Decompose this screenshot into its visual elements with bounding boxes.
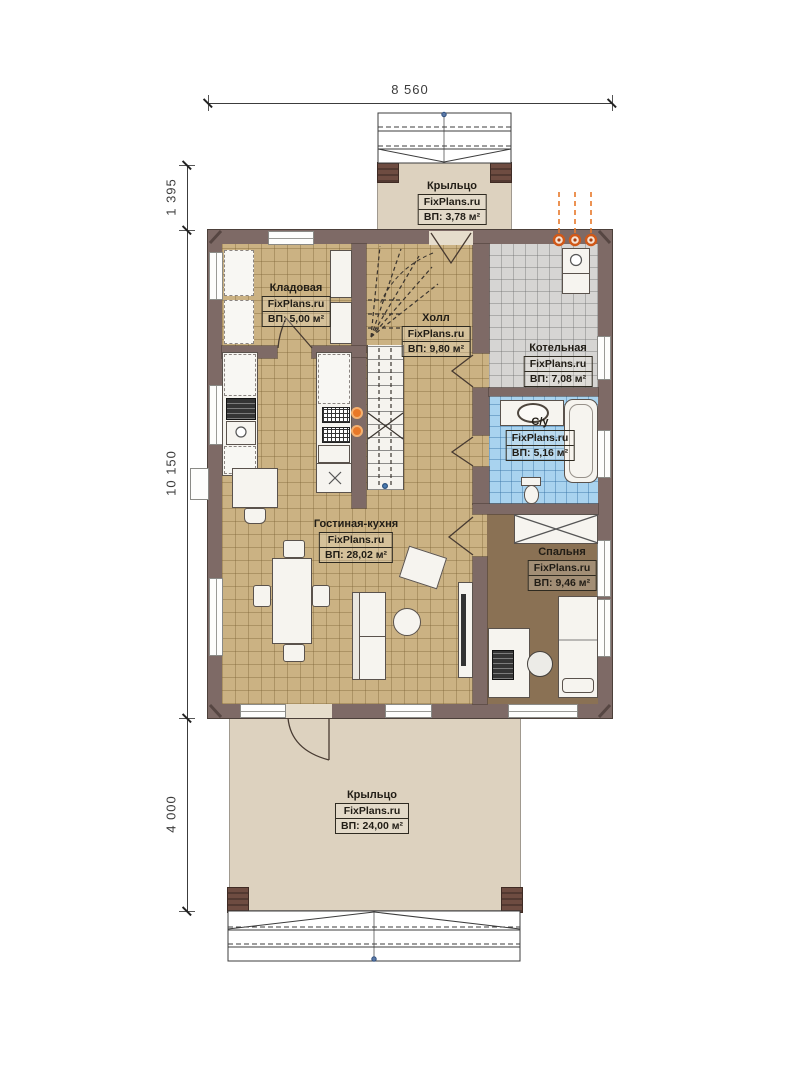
dim-main-label: 10 150 <box>164 450 179 496</box>
wall-bedroom-left <box>473 557 487 704</box>
chair <box>283 540 305 558</box>
room-name: С/у <box>531 416 548 428</box>
fixplans-watermark: FixPlans.ru <box>403 327 470 341</box>
room-area: ВП: 28,02 м² <box>320 547 392 562</box>
wall-hall-right <box>473 388 489 435</box>
room-label-boiler: Котельная FixPlans.ru ВП: 7,08 м² <box>524 342 593 387</box>
porch-column <box>502 888 522 912</box>
fixplans-watermark: FixPlans.ru <box>525 357 592 371</box>
window <box>508 704 578 718</box>
porch-column <box>491 163 511 182</box>
pillow <box>562 678 594 693</box>
label-box: FixPlans.ru ВП: 3,78 м² <box>418 194 487 225</box>
room-area: ВП: 5,16 м² <box>507 445 574 460</box>
room-label-living-kitchen: Гостиная-кухня FixPlans.ru ВП: 28,02 м² <box>314 518 398 563</box>
room-name: Котельная <box>529 342 587 354</box>
label-box: FixPlans.ru ВП: 28,02 м² <box>319 532 393 563</box>
chair <box>283 644 305 662</box>
canopy-top <box>378 112 511 163</box>
fixplans-watermark: FixPlans.ru <box>336 804 408 818</box>
room-label-porch-top: Крыльцо FixPlans.ru ВП: 3,78 м² <box>418 180 487 225</box>
sofa-backrest <box>352 592 360 680</box>
room-area: ВП: 24,00 м² <box>336 818 408 833</box>
fixplans-watermark: FixPlans.ru <box>320 533 392 547</box>
fixplans-watermark: FixPlans.ru <box>529 561 596 575</box>
kitchen-cabinet <box>224 354 256 396</box>
wall-storage-right <box>352 244 366 352</box>
room-label-porch-bottom: Крыльцо FixPlans.ru ВП: 24,00 м² <box>335 789 409 834</box>
chair <box>253 585 271 607</box>
kitchen-fridge <box>226 398 256 420</box>
room-label-hall: Холл FixPlans.ru ВП: 9,80 м² <box>402 312 471 357</box>
wall-hall-right <box>473 467 489 504</box>
dim-width-label: 8 560 <box>208 82 612 97</box>
storage-wardrobe <box>330 302 352 344</box>
dim-line-top <box>208 103 612 104</box>
fixplans-watermark: FixPlans.ru <box>419 195 486 209</box>
label-box: FixPlans.ru ВП: 5,16 м² <box>506 430 575 461</box>
dining-table <box>272 558 312 644</box>
window <box>268 231 314 245</box>
label-box: FixPlans.ru ВП: 9,80 м² <box>402 326 471 357</box>
room-area: ВП: 7,08 м² <box>525 371 592 386</box>
front-door-opening <box>429 231 473 245</box>
porch-column <box>378 163 398 182</box>
room-name: Гостиная-кухня <box>314 518 398 530</box>
room-label-storage: Кладовая FixPlans.ru ВП: 5,00 м² <box>262 282 331 327</box>
kitchen-island <box>232 468 278 508</box>
kitchen-sink-unit <box>226 421 256 445</box>
window <box>240 704 286 718</box>
stove-burners <box>322 407 350 423</box>
fixplans-watermark: FixPlans.ru <box>507 431 574 445</box>
room-name: Крыльцо <box>347 789 397 801</box>
wall-hall-right <box>473 244 489 353</box>
storage-shelf <box>224 250 254 296</box>
dim-porchtop-label: 1 395 <box>164 178 179 216</box>
wall-vent-box <box>190 468 209 500</box>
chair <box>312 585 330 607</box>
room-area: ВП: 9,80 м² <box>403 341 470 356</box>
room-label-bedroom: Спальня FixPlans.ru ВП: 9,46 м² <box>528 546 597 591</box>
room-name: Спальня <box>538 546 586 558</box>
window <box>209 252 223 300</box>
label-box: FixPlans.ru ВП: 9,46 м² <box>528 560 597 591</box>
label-box: FixPlans.ru ВП: 7,08 м² <box>524 356 593 387</box>
window <box>385 704 432 718</box>
storage-shelf <box>224 300 254 344</box>
wall-boiler-bath <box>489 388 598 396</box>
room-area: ВП: 3,78 м² <box>419 209 486 224</box>
tv <box>461 594 466 666</box>
room-name: Кладовая <box>270 282 323 294</box>
stairs-straight-run <box>367 345 404 490</box>
toilet-bowl <box>524 485 539 504</box>
window <box>597 336 611 380</box>
storage-wardrobe <box>330 250 352 298</box>
wardrobe <box>514 514 598 544</box>
dishwasher <box>316 463 352 493</box>
label-box: FixPlans.ru ВП: 5,00 м² <box>262 296 331 327</box>
window <box>209 578 223 656</box>
terrace-door-opening <box>285 704 332 718</box>
wall-kitchen-partition <box>352 358 366 508</box>
window <box>597 599 611 657</box>
window <box>209 385 223 445</box>
room-area: ВП: 5,00 м² <box>263 311 330 326</box>
kitchen-cabinet <box>318 354 350 404</box>
window <box>597 430 611 478</box>
stove-burners <box>322 427 350 443</box>
kitchen-cabinet <box>318 445 350 463</box>
chair <box>244 508 266 524</box>
window <box>597 540 611 597</box>
canopy-bottom <box>228 911 520 961</box>
floor-plan: 8 560 1 395 10 150 4 000 <box>0 0 792 1080</box>
room-name: Крыльцо <box>427 180 477 192</box>
porch-column <box>228 888 248 912</box>
dim-line-left <box>187 165 188 911</box>
wall-bath-bedroom <box>473 504 598 514</box>
office-chair <box>527 651 553 677</box>
room-label-bathroom: С/у FixPlans.ru ВП: 5,16 м² <box>506 416 575 461</box>
room-name: Холл <box>422 312 450 324</box>
room-area: ВП: 9,46 м² <box>529 575 596 590</box>
fixplans-watermark: FixPlans.ru <box>263 297 330 311</box>
label-box: FixPlans.ru ВП: 24,00 м² <box>335 803 409 834</box>
dim-porchbottom-label: 4 000 <box>164 795 179 833</box>
boiler-unit <box>562 248 590 294</box>
computer <box>492 650 514 680</box>
coffee-table <box>393 608 421 636</box>
